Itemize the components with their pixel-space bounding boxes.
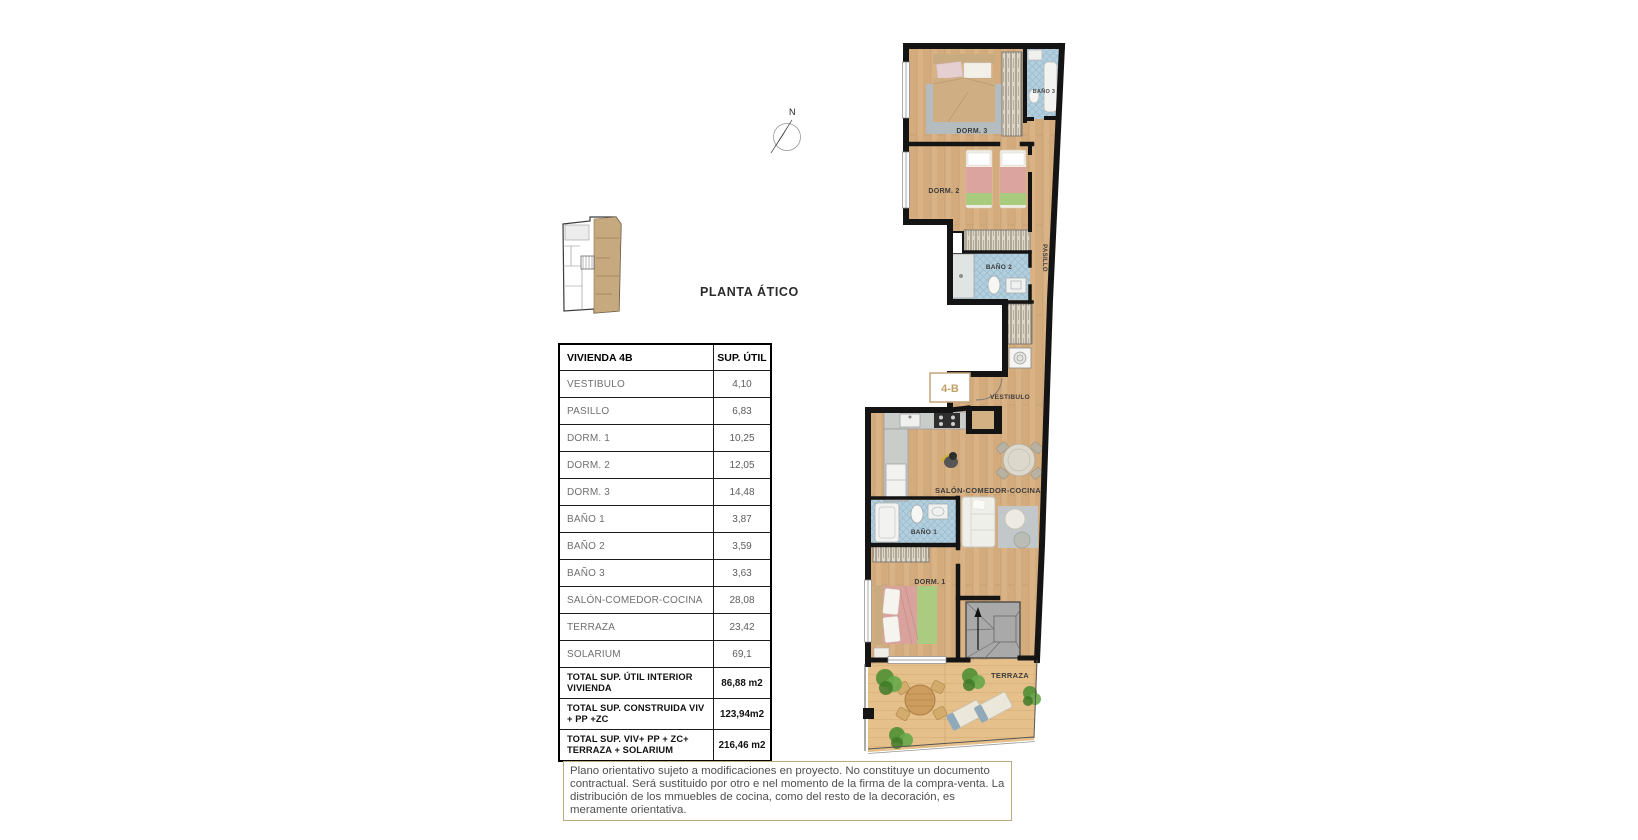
key-plan — [560, 214, 624, 314]
room-label-dorm1: DORM. 1 — [914, 579, 945, 586]
table-row: DORM. 212,05 — [559, 452, 771, 479]
sink — [928, 504, 948, 519]
row-value: 4,10 — [714, 371, 772, 398]
living-rug — [998, 506, 1038, 548]
row-value: 69,1 — [714, 641, 772, 668]
stairs — [966, 602, 1020, 658]
table-row: PASILLO6,83 — [559, 398, 771, 425]
table-row: TERRAZA23,42 — [559, 614, 771, 641]
row-label: PASILLO — [559, 398, 714, 425]
row-value: 3,59 — [714, 533, 772, 560]
table-row: BAÑO 23,59 — [559, 533, 771, 560]
sink — [1028, 50, 1042, 60]
bedroom-3 — [926, 52, 1022, 136]
stove — [934, 413, 960, 428]
row-value: 10,25 — [714, 425, 772, 452]
toilet — [911, 505, 923, 523]
table-row: DORM. 110,25 — [559, 425, 771, 452]
sink — [1006, 278, 1026, 293]
room-label-bano3: BAÑO 3 — [1033, 88, 1056, 95]
unit-badge: 4-B — [930, 373, 970, 402]
disclaimer-note: Plano orientativo sujeto a modificacione… — [563, 761, 1012, 821]
row-label: TERRAZA — [559, 614, 714, 641]
total-value: 123,94m2 — [714, 699, 772, 730]
sofa — [962, 497, 995, 547]
row-value: 28,08 — [714, 587, 772, 614]
room-label-dorm2: DORM. 2 — [928, 188, 959, 195]
room-label-salon: SALÓN-COMEDOR-COCINA — [935, 486, 1041, 495]
row-label: BAÑO 3 — [559, 560, 714, 587]
table-header-unit: VIVIENDA 4B — [559, 344, 714, 371]
row-label: SOLARIUM — [559, 641, 714, 668]
wardrobe — [1002, 52, 1022, 136]
row-label: DORM. 3 — [559, 479, 714, 506]
room-label-vestibulo: VESTIBULO — [990, 394, 1030, 401]
row-value: 14,48 — [714, 479, 772, 506]
table-row: SALÓN-COMEDOR-COCINA28,08 — [559, 587, 771, 614]
row-label: DORM. 2 — [559, 452, 714, 479]
single-bed — [966, 150, 992, 208]
table-row: BAÑO 13,87 — [559, 506, 771, 533]
double-bed — [933, 54, 995, 122]
double-bed — [874, 585, 937, 645]
wardrobe — [873, 546, 929, 562]
row-label: BAÑO 2 — [559, 533, 714, 560]
room-label-bano2: BAÑO 2 — [986, 262, 1012, 271]
table-row: DORM. 314,48 — [559, 479, 771, 506]
floor-plan: 4-B DORM. 3 BAÑO 3 DORM. 2 BAÑO 2 PASILL… — [855, 38, 1070, 760]
total-label: TOTAL SUP. ÚTIL INTERIOR VIVIENDA — [559, 668, 714, 699]
plant — [1023, 686, 1041, 706]
key-plan-highlight-unit — [594, 217, 621, 313]
row-label: VESTIBULO — [559, 371, 714, 398]
total-label: TOTAL SUP. VIV+ PP + ZC+ TERRAZA + SOLAR… — [559, 730, 714, 762]
areas-table-header: VIVIENDA 4B SUP. ÚTIL — [559, 344, 771, 371]
room-label-bano1: BAÑO 1 — [911, 527, 937, 536]
room-label-pasillo: PASILLO — [1041, 244, 1047, 272]
row-label: BAÑO 1 — [559, 506, 714, 533]
table-row: VESTIBULO4,10 — [559, 371, 771, 398]
total-label: TOTAL SUP. CONSTRUIDA VIV + PP +ZC — [559, 699, 714, 730]
hallway-storage — [1008, 304, 1032, 368]
row-label: DORM. 1 — [559, 425, 714, 452]
table-total-row: TOTAL SUP. VIV+ PP + ZC+ TERRAZA + SOLAR… — [559, 730, 771, 762]
areas-table: VIVIENDA 4B SUP. ÚTIL VESTIBULO4,10 PASI… — [558, 343, 772, 762]
table-total-row: TOTAL SUP. CONSTRUIDA VIV + PP +ZC123,94… — [559, 699, 771, 730]
table-row: BAÑO 33,63 — [559, 560, 771, 587]
compass-north-label: N — [789, 107, 796, 117]
bathtub — [875, 503, 899, 542]
total-value: 86,88 m2 — [714, 668, 772, 699]
row-value: 6,83 — [714, 398, 772, 425]
toilet — [988, 276, 1000, 294]
room-label-dorm3: DORM. 3 — [956, 128, 987, 135]
bathtub — [1044, 62, 1057, 112]
table-total-row: TOTAL SUP. ÚTIL INTERIOR VIVIENDA86,88 m… — [559, 668, 771, 699]
table-header-column: SUP. ÚTIL — [714, 344, 772, 371]
unit-badge-label: 4-B — [941, 383, 959, 395]
pouf — [1014, 532, 1030, 548]
table-row: SOLARIUM69,1 — [559, 641, 771, 668]
row-label: SALÓN-COMEDOR-COCINA — [559, 587, 714, 614]
document-page: N PLANTA ÁTICO VIVIENDA 4B SUP. ÚTIL VES… — [0, 0, 1638, 840]
row-value: 3,63 — [714, 560, 772, 587]
row-value: 12,05 — [714, 452, 772, 479]
north-compass-icon: N — [763, 100, 803, 158]
fridge — [886, 464, 906, 498]
total-value: 216,46 m2 — [714, 730, 772, 762]
page-title: PLANTA ÁTICO — [700, 285, 799, 299]
closet — [1008, 304, 1032, 344]
row-value: 23,42 — [714, 614, 772, 641]
pouf — [1005, 509, 1025, 529]
room-label-terraza: TERRAZA — [991, 671, 1029, 680]
row-value: 3,87 — [714, 506, 772, 533]
wardrobe — [964, 230, 1030, 252]
single-bed — [1000, 150, 1026, 208]
